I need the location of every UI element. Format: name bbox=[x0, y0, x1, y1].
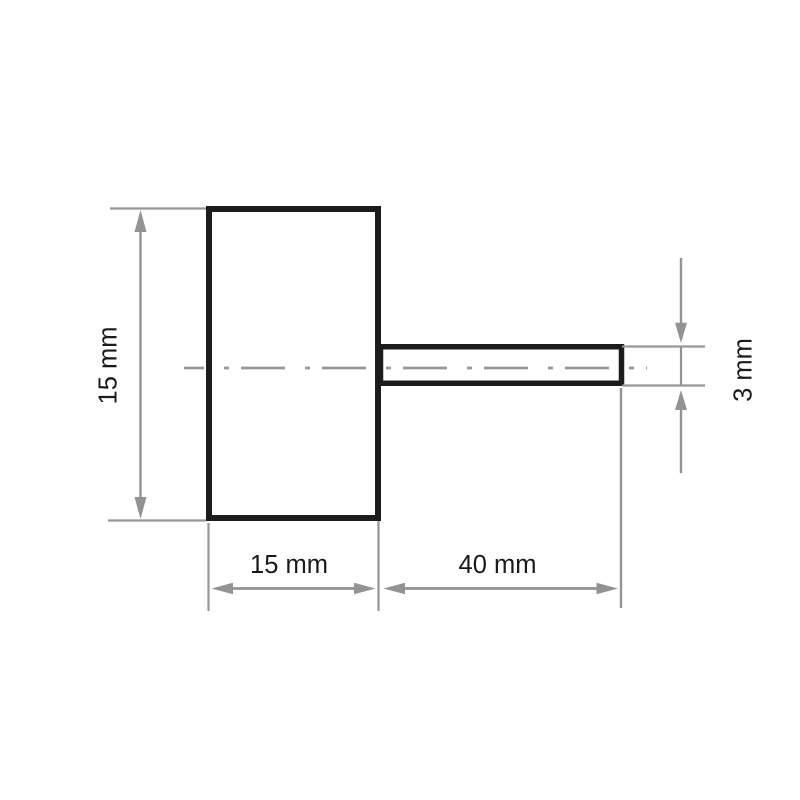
svg-text:40 mm: 40 mm bbox=[459, 551, 537, 579]
svg-text:15 mm: 15 mm bbox=[95, 327, 123, 405]
svg-text:15 mm: 15 mm bbox=[250, 551, 328, 579]
svg-text:3 mm: 3 mm bbox=[730, 338, 758, 402]
